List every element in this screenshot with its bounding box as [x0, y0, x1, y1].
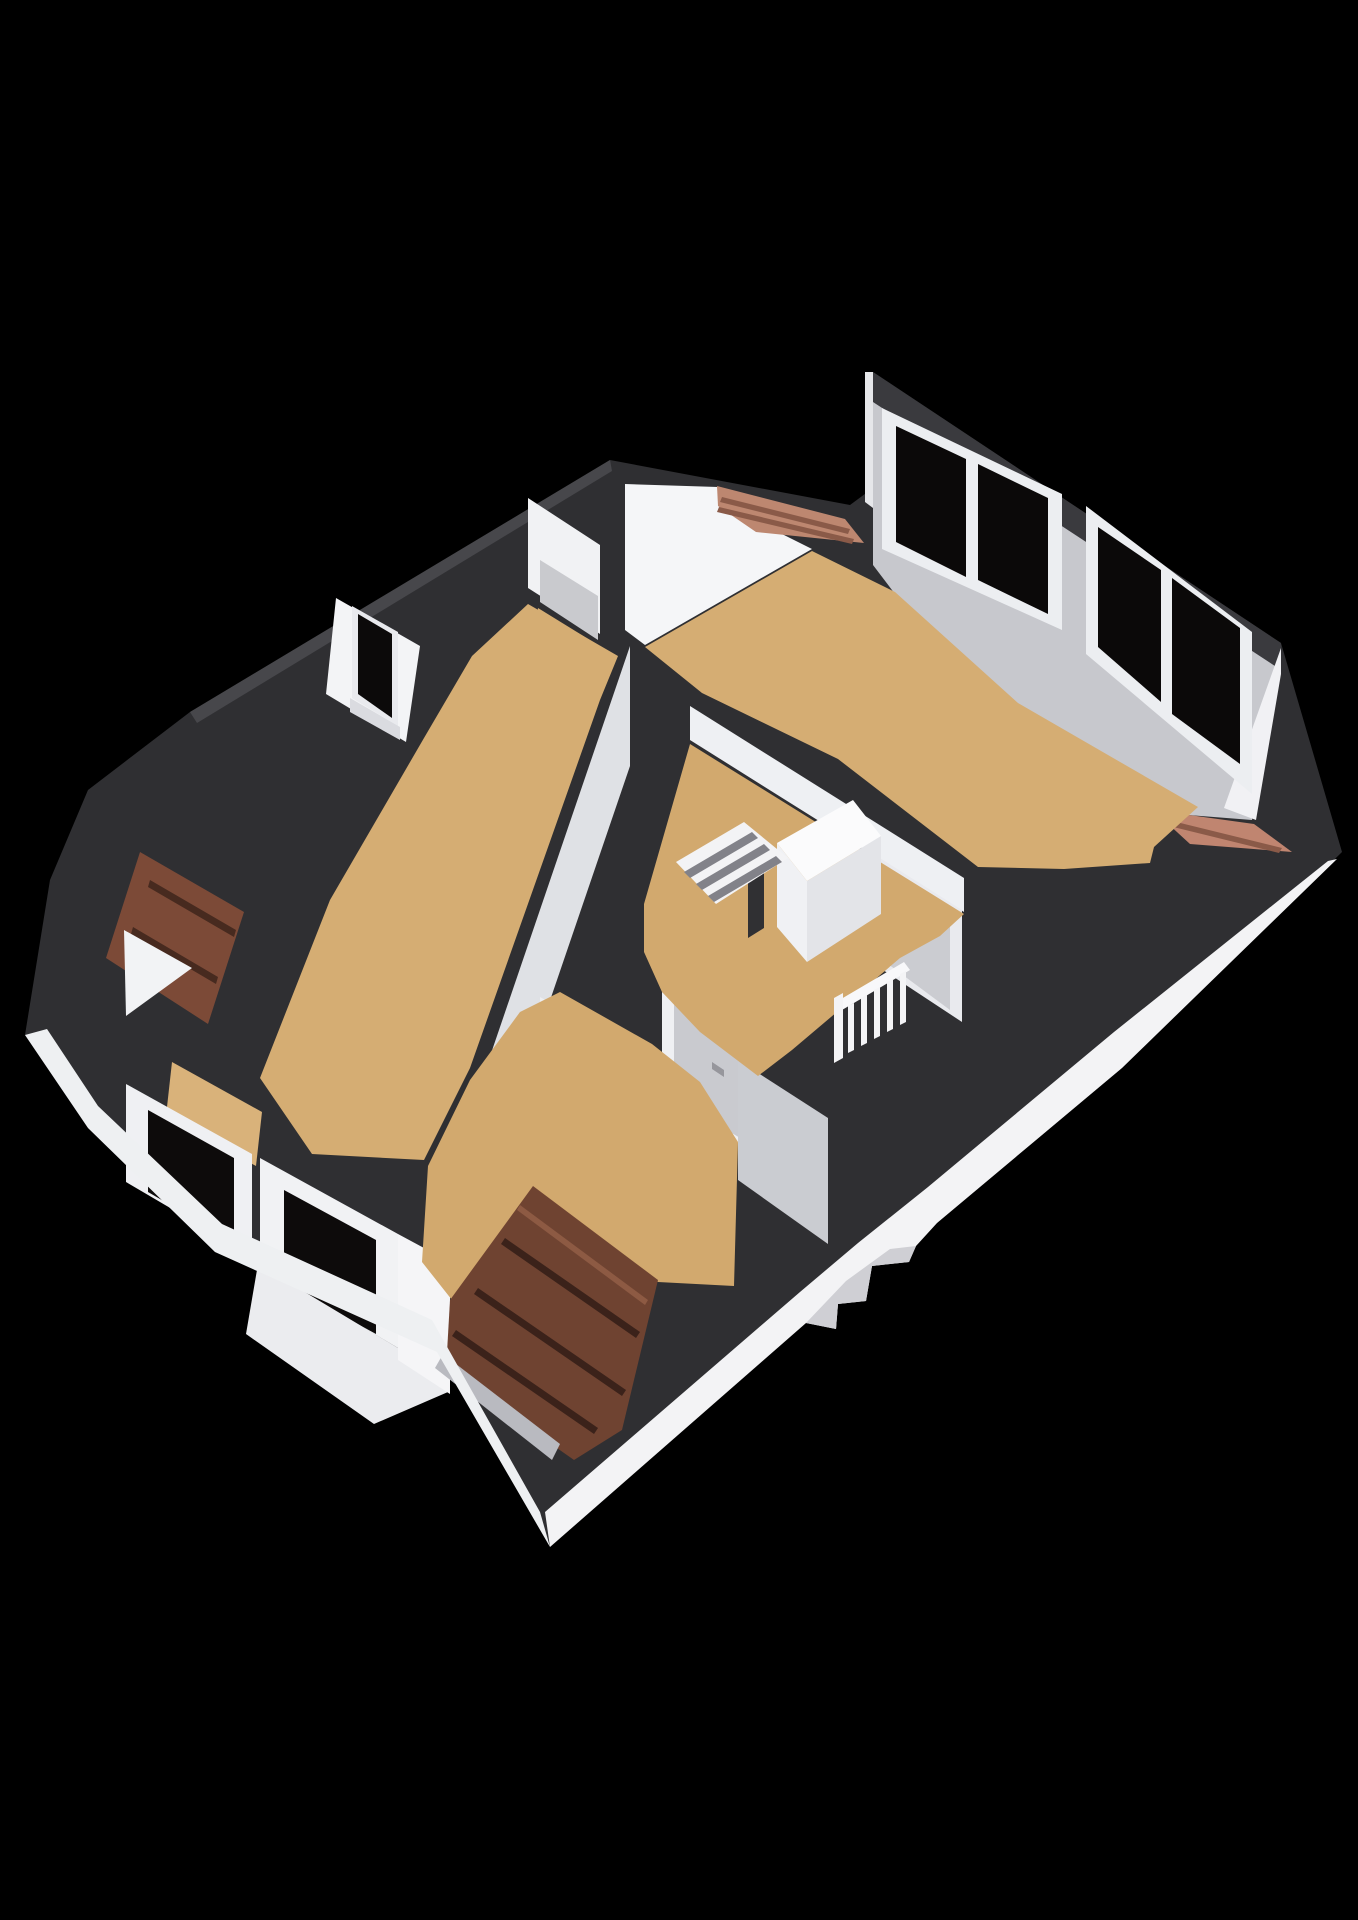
- stair-railing-baluster-4: [887, 979, 893, 1032]
- floorplan-3d-stage: [0, 0, 1358, 1920]
- stair-railing-baluster-5: [900, 971, 906, 1025]
- stair-railing-baluster-2: [861, 995, 867, 1046]
- stair-railing-baluster-3: [874, 987, 880, 1039]
- house-attic-floor-group: [25, 372, 1342, 1547]
- stair-railing-newel: [834, 993, 843, 1063]
- dormer-left-trim: [865, 372, 873, 508]
- stair-railing-baluster-1: [848, 1003, 854, 1053]
- floorplan-3d-render: [0, 0, 1358, 1920]
